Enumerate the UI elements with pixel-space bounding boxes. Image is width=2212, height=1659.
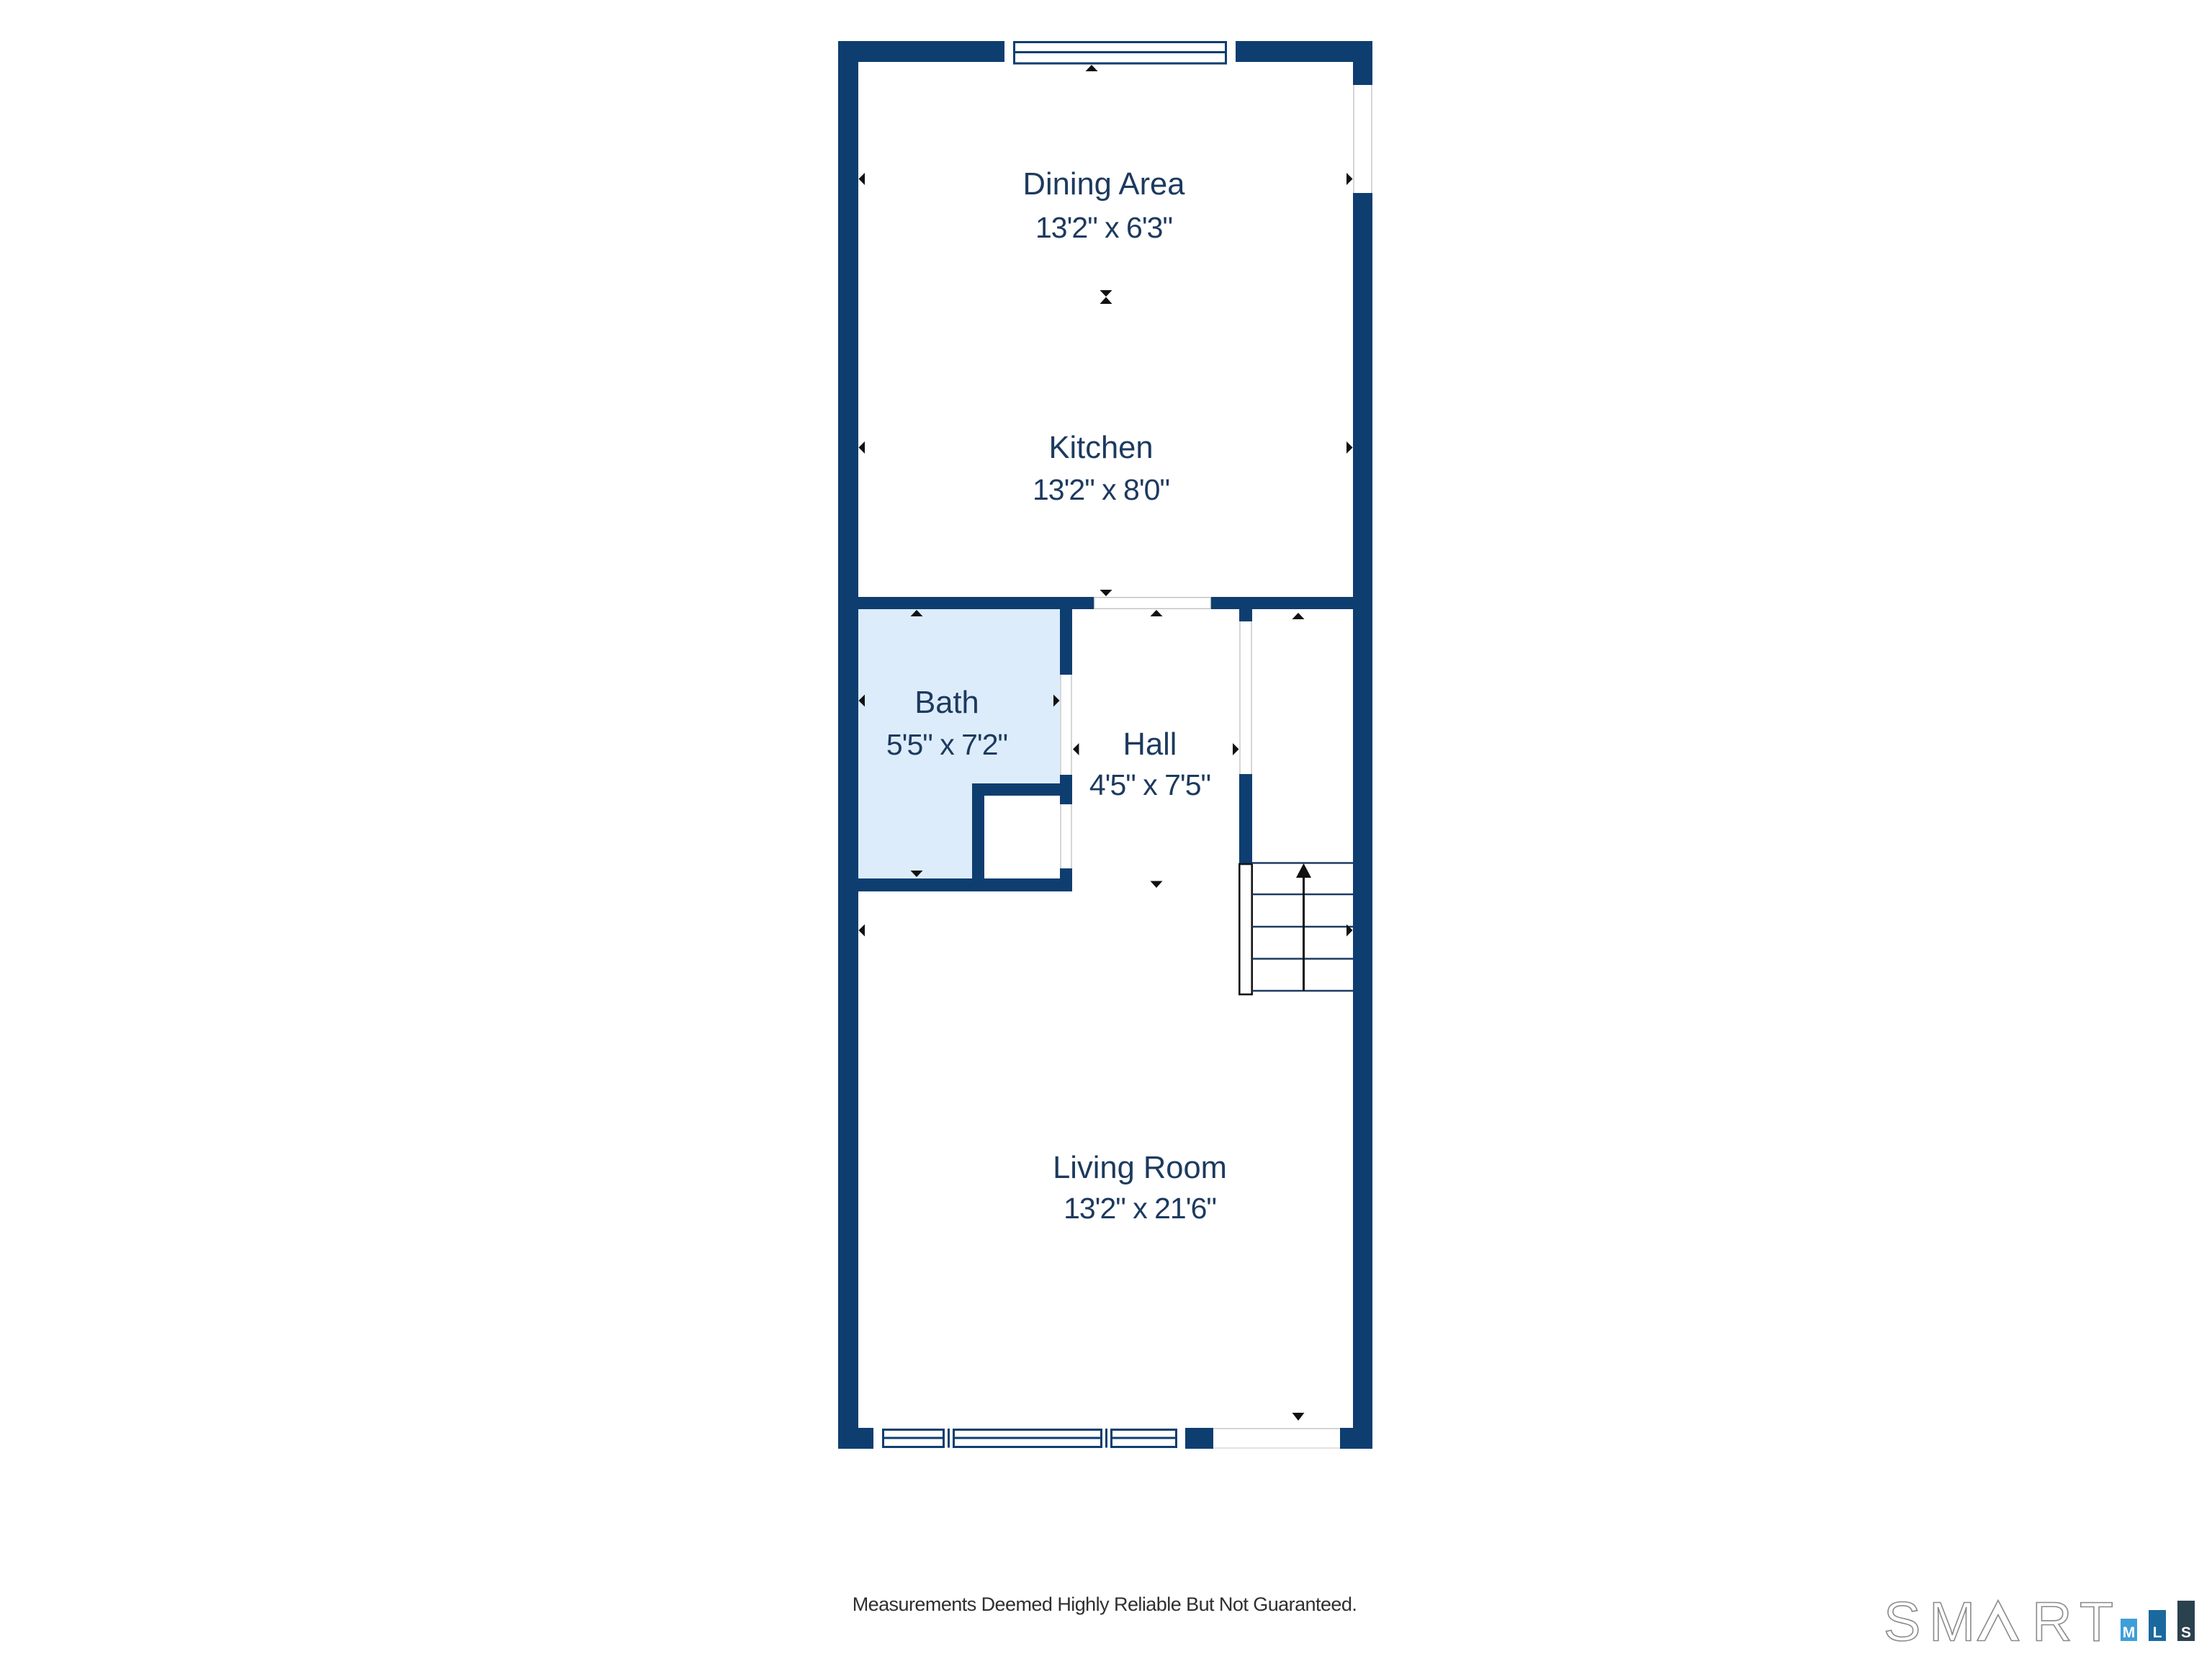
svg-text:S: S xyxy=(2181,1624,2191,1641)
svg-text:Hall: Hall xyxy=(1123,727,1177,762)
svg-text:L: L xyxy=(2153,1624,2162,1641)
svg-text:13'2" x 8'0": 13'2" x 8'0" xyxy=(1033,473,1169,506)
svg-text:13'2" x 21'6": 13'2" x 21'6" xyxy=(1064,1192,1216,1225)
svg-text:5'5" x 7'2": 5'5" x 7'2" xyxy=(886,728,1007,761)
svg-text:RT: RT xyxy=(2032,1591,2122,1653)
svg-text:Bath: Bath xyxy=(914,685,979,720)
svg-text:Kitchen: Kitchen xyxy=(1048,431,1153,465)
svg-text:Living Room: Living Room xyxy=(1053,1151,1227,1185)
svg-text:Dining Area: Dining Area xyxy=(1023,167,1186,202)
svg-text:Measurements Deemed Highly Rel: Measurements Deemed Highly Reliable But … xyxy=(853,1593,1357,1615)
svg-text:13'2" x 6'3": 13'2" x 6'3" xyxy=(1035,211,1172,244)
svg-text:SM: SM xyxy=(1884,1591,1984,1653)
svg-text:4'5" x 7'5": 4'5" x 7'5" xyxy=(1089,768,1210,801)
svg-text:M: M xyxy=(2123,1624,2136,1641)
